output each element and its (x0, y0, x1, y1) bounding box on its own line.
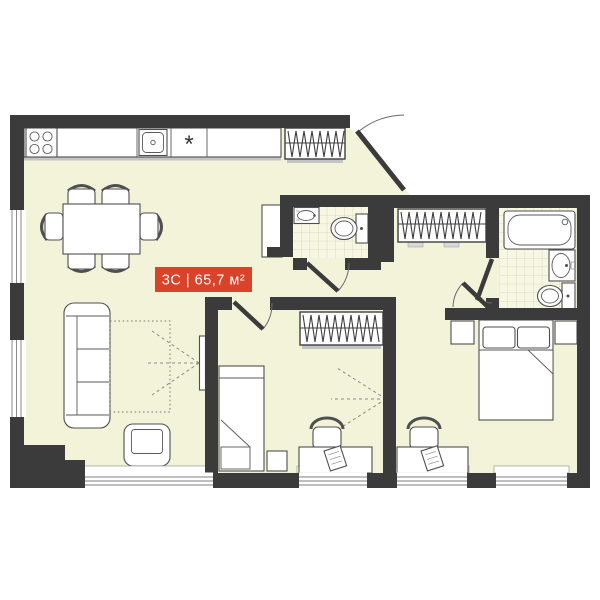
window-sill (83, 466, 215, 473)
window (85, 473, 213, 489)
dining-chair (42, 213, 64, 240)
sofa (64, 303, 110, 428)
double-bed (479, 320, 553, 420)
nightstand-left (451, 321, 474, 344)
dining-table (63, 204, 140, 254)
bed-stool (267, 451, 287, 471)
single-bed (219, 366, 264, 471)
window (299, 473, 367, 489)
window (397, 473, 467, 489)
area-badge: 3С | 65,7 м² (155, 267, 252, 292)
window-sill (494, 466, 569, 473)
wc-sink-icon (294, 208, 319, 224)
bath-sink-icon (549, 250, 576, 281)
dining-chair (140, 213, 162, 240)
floor-plan-drawing: * (0, 0, 600, 600)
svg-text:*: * (184, 131, 193, 158)
fridge-icon: * (184, 131, 193, 158)
bath-toilet-icon (538, 283, 576, 309)
middle-wardrobe-icon (300, 312, 383, 349)
armchair (124, 424, 170, 466)
nightstand-right (555, 321, 577, 344)
stove-icon (26, 128, 57, 157)
window (7, 340, 26, 417)
corridor-wardrobe-icon (398, 209, 486, 247)
kitchen-sink-icon (139, 130, 167, 156)
middle-desk (299, 446, 372, 473)
area-badge-label: 3С | 65,7 м² (162, 273, 245, 289)
window (496, 473, 567, 489)
bedroom-desk (397, 446, 468, 473)
bathtub-icon (504, 211, 575, 249)
apartment-floor-plan: * (0, 0, 600, 600)
window (7, 210, 26, 283)
hall-wardrobe-icon (285, 128, 345, 163)
